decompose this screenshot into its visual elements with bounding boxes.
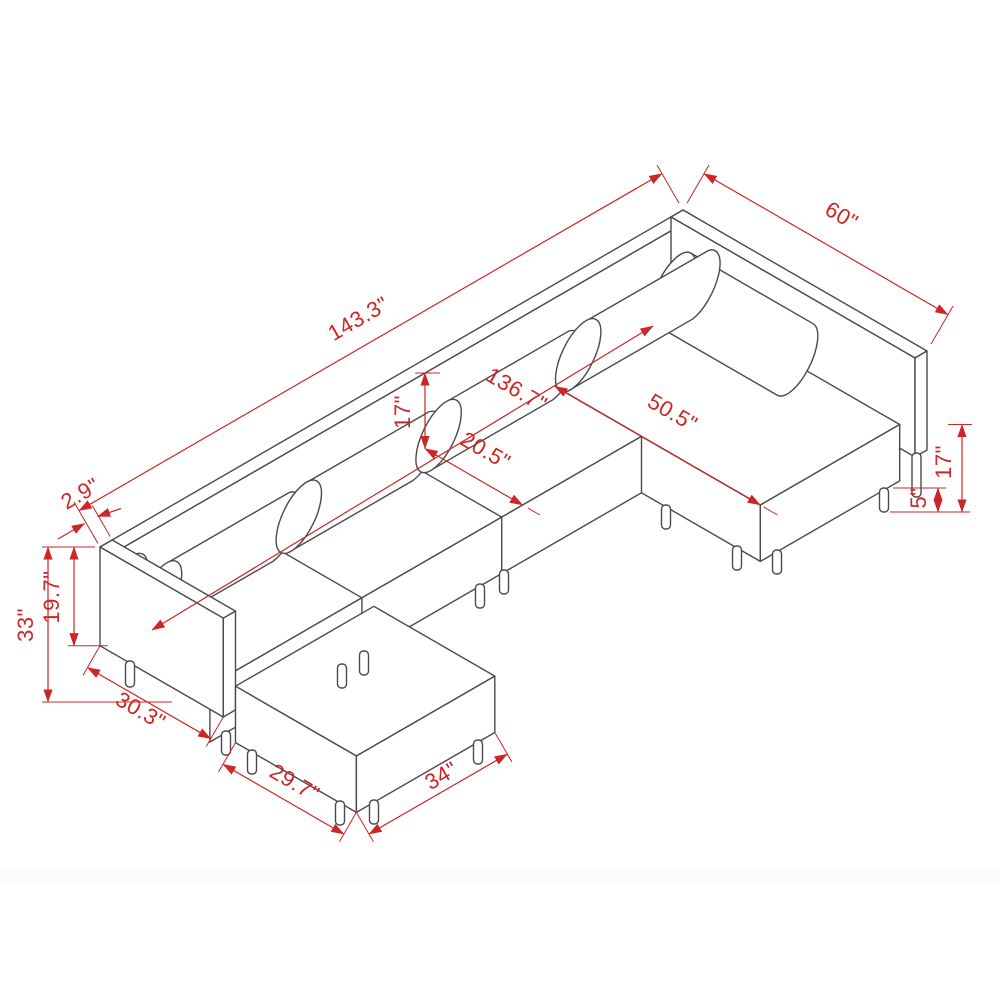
sofa-leg bbox=[662, 505, 671, 529]
wing-rail-end-face bbox=[915, 351, 927, 457]
dim-label-back-overall-width: 143.3" bbox=[323, 291, 393, 346]
dim-label-arm-panel-height: 19.7" bbox=[39, 570, 64, 623]
sofa-leg bbox=[370, 800, 379, 824]
background-band bbox=[0, 868, 1000, 882]
sofa-leg bbox=[248, 750, 257, 774]
sofa-leg bbox=[222, 731, 231, 755]
dim-line-arm-thickness-b bbox=[98, 509, 122, 517]
dim-label-right-wing-length: 60" bbox=[821, 196, 863, 235]
sofa-leg bbox=[336, 801, 345, 825]
dim-line-arm-thickness-a bbox=[58, 524, 85, 540]
sofa-leg bbox=[773, 550, 782, 574]
sofa-dimension-diagram: 143.3" 60" 50.5" 17" 20.5" 136.7" 2.9" 3… bbox=[0, 0, 1000, 1000]
dim-label-overall-height: 33" bbox=[13, 608, 38, 642]
sofa-leg bbox=[476, 584, 485, 608]
sofa-outline bbox=[93, 210, 927, 825]
arm-end-face bbox=[223, 611, 235, 717]
sofa-leg bbox=[733, 546, 742, 570]
dim-label-left-arm-depth: 30.3" bbox=[111, 686, 170, 734]
sofa-leg bbox=[126, 661, 135, 687]
dim-label-arm-thickness: 2.9" bbox=[57, 473, 104, 515]
sofa-leg bbox=[338, 664, 347, 688]
sofa-leg bbox=[500, 570, 509, 594]
dim-label-leg-height: 5" bbox=[906, 487, 931, 508]
sofa-leg bbox=[474, 740, 483, 764]
diagram-canvas: 143.3" 60" 50.5" 17" 20.5" 136.7" 2.9" 3… bbox=[0, 0, 1000, 1000]
sofa-leg bbox=[360, 651, 369, 675]
dim-label-seat-height: 17" bbox=[931, 445, 956, 479]
dim-label-backrest-above-seat: 17" bbox=[390, 395, 415, 429]
sofa-leg bbox=[880, 488, 889, 512]
